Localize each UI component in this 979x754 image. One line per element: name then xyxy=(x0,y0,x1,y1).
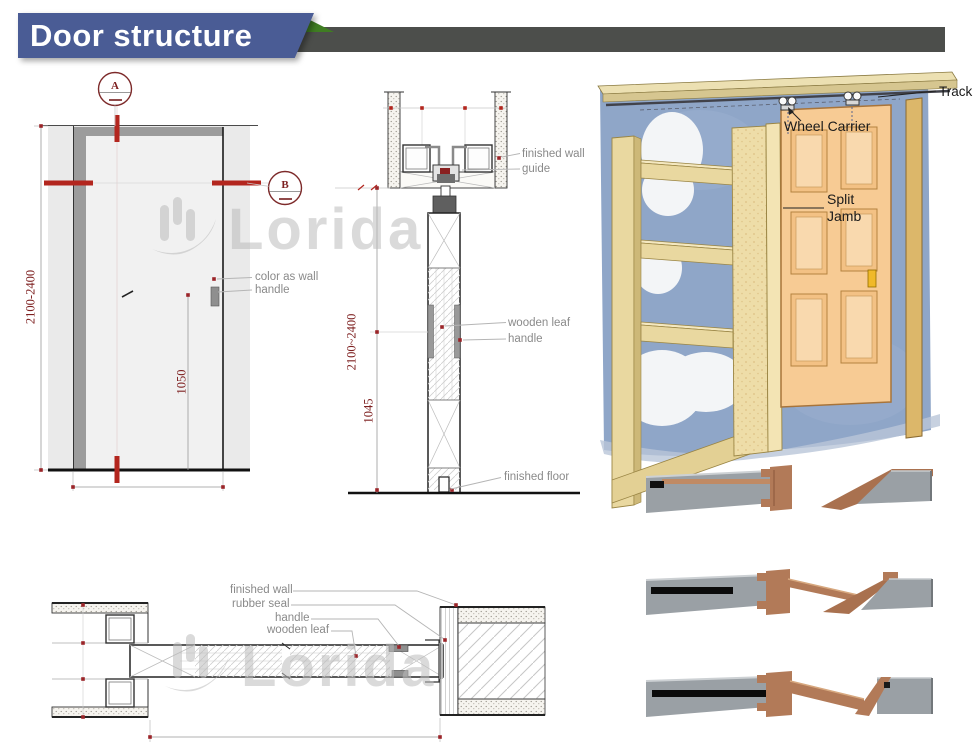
plan-rubber-seal-label: rubber seal xyxy=(232,598,290,610)
illustration-wheel-carrier-label: Wheel Carrier xyxy=(784,118,870,134)
section-handle-height-dimension: 1045 xyxy=(362,399,377,424)
door-structure-page: Lorida Lorida Door structure A B 2100-24… xyxy=(0,0,979,754)
plan-wooden-leaf-label: wooden leaf xyxy=(267,624,329,636)
jamb-profile-renders xyxy=(646,465,933,717)
plan-finished-wall-label: finished wall xyxy=(230,584,293,596)
section-wooden-leaf-label: wooden leaf xyxy=(508,317,570,329)
page-title: Door structure xyxy=(30,13,252,58)
pocket-door-illustration xyxy=(598,72,957,508)
section-finished-floor-label: finished floor xyxy=(504,471,569,483)
elevation-handle-height-dimension: 1050 xyxy=(175,370,190,395)
section-marker-b: B xyxy=(281,179,288,191)
section-handle-label: handle xyxy=(508,333,543,345)
illustration-split-jamb-label: Split Jamb xyxy=(827,191,879,225)
section-finished-wall-label: finished wall xyxy=(522,148,585,160)
elevation-height-dimension: 2100-2400 xyxy=(24,270,39,324)
elevation-color-as-wall-label: color as wall xyxy=(255,271,318,283)
section-guide-label: guide xyxy=(522,163,550,175)
technical-drawing-layer xyxy=(0,0,979,754)
elevation-handle-label: handle xyxy=(255,284,290,296)
section-marker-a: A xyxy=(111,80,119,92)
header-banner: Door structure xyxy=(18,13,314,58)
section-height-dimension: 2100~2400 xyxy=(345,314,360,371)
illustration-track-label: Track xyxy=(939,84,972,99)
plan-handle-label: handle xyxy=(275,612,310,624)
header-accent-bar xyxy=(293,27,945,52)
